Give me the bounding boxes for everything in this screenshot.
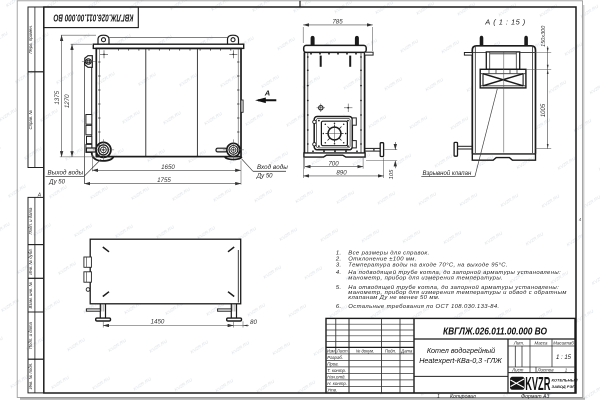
svg-text:Утв.: Утв. — [327, 388, 337, 393]
svg-text:Инв. № подл.: Инв. № подл. — [28, 363, 33, 390]
svg-text:Лист: Лист — [511, 367, 524, 372]
svg-text:Н. контр.: Н. контр. — [327, 381, 347, 386]
svg-text:Подп. и дата: Подп. и дата — [28, 207, 33, 235]
svg-text:1450: 1450 — [151, 319, 165, 326]
svg-text:785: 785 — [332, 19, 343, 26]
svg-text:4.: 4. — [336, 270, 342, 276]
svg-text:ЗАВОД РЭП: ЗАВОД РЭП — [552, 384, 576, 389]
svg-text:Пров.: Пров. — [327, 362, 339, 367]
svg-text:150х300: 150х300 — [541, 25, 547, 47]
svg-text:3.: 3. — [336, 262, 342, 268]
svg-text:Изм: Изм — [327, 349, 335, 354]
svg-text:Heatexpert-КВа-0,3 -ГЛЖ: Heatexpert-КВа-0,3 -ГЛЖ — [419, 356, 502, 365]
svg-text:890: 890 — [336, 170, 347, 177]
svg-text:Перв. примен.: Перв. примен. — [28, 25, 33, 54]
svg-text:Лит.: Лит. — [513, 340, 524, 345]
svg-text:1755: 1755 — [157, 177, 171, 184]
svg-text:№ докум.: № докум. — [356, 349, 374, 354]
svg-text:1: 1 — [437, 394, 440, 400]
svg-text:80: 80 — [250, 319, 257, 326]
svg-text:5.: 5. — [336, 285, 342, 291]
svg-text:6.: 6. — [336, 304, 342, 310]
svg-text:Дата: Дата — [400, 349, 413, 354]
svg-text:Котел водогрейный: Котел водогрейный — [427, 346, 495, 355]
svg-text:Температура воды на входе 70°С: Температура воды на входе 70°С, на выход… — [348, 262, 508, 268]
svg-text:Нач.отд.: Нач.отд. — [327, 375, 346, 380]
svg-text:Масса: Масса — [535, 340, 549, 345]
svg-text:Лист: Лист — [336, 349, 348, 354]
svg-text:манометр, прибор для измерения: манометр, прибор для измерения температу… — [348, 276, 503, 282]
svg-text:Ду 50: Ду 50 — [256, 174, 273, 180]
svg-text:Формат А3: Формат А3 — [521, 394, 549, 400]
svg-text:КОТЕЛЬНЫЙ: КОТЕЛЬНЫЙ — [552, 377, 578, 382]
svg-text:1375: 1375 — [54, 90, 61, 104]
svg-text:KVZR: KVZR — [525, 374, 550, 394]
svg-text:105: 105 — [389, 169, 395, 179]
svg-text:Листов: Листов — [537, 367, 555, 372]
svg-text:1650: 1650 — [161, 164, 175, 171]
svg-text:Вход воды: Вход воды — [257, 164, 288, 171]
svg-text:Инв. № дубл.: Инв. № дубл. — [28, 248, 33, 274]
svg-text:Подп. и дата: Подп. и дата — [28, 322, 33, 350]
svg-text:Разраб.: Разраб. — [327, 355, 343, 360]
svg-text:Взрывной клапан: Взрывной клапан — [423, 170, 472, 177]
svg-text:Ду 50: Ду 50 — [48, 180, 65, 186]
svg-text:Масштаб: Масштаб — [553, 340, 574, 345]
svg-text:А: А — [264, 88, 270, 97]
svg-text:700: 700 — [328, 160, 339, 167]
svg-text:Копировал: Копировал — [450, 394, 476, 400]
svg-text:КВГЛЖ.026.011.00.000 ВО: КВГЛЖ.026.011.00.000 ВО — [443, 326, 547, 338]
svg-text:Т. контр.: Т. контр. — [327, 368, 346, 373]
svg-text:Остальные требования по ОСТ 10: Остальные требования по ОСТ 108.030.133-… — [348, 304, 499, 310]
svg-text:клапанам Ду не менее 50 мм.: клапанам Ду не менее 50 мм. — [348, 295, 440, 301]
svg-text:1 : 15: 1 : 15 — [556, 355, 572, 361]
svg-text:А ( 1 : 15 ): А ( 1 : 15 ) — [484, 18, 526, 27]
svg-text:1270: 1270 — [64, 94, 71, 108]
svg-text:1005: 1005 — [541, 103, 547, 117]
svg-text:Подп.: Подп. — [385, 349, 396, 354]
svg-text:Выход воды: Выход воды — [48, 169, 84, 176]
svg-text:КВГЛЖ.026.011.00.000 ВО: КВГЛЖ.026.011.00.000 ВО — [53, 11, 133, 22]
svg-text:Справ. №: Справ. № — [28, 110, 33, 130]
svg-text:Взам. инв. №: Взам. инв. № — [28, 282, 33, 309]
